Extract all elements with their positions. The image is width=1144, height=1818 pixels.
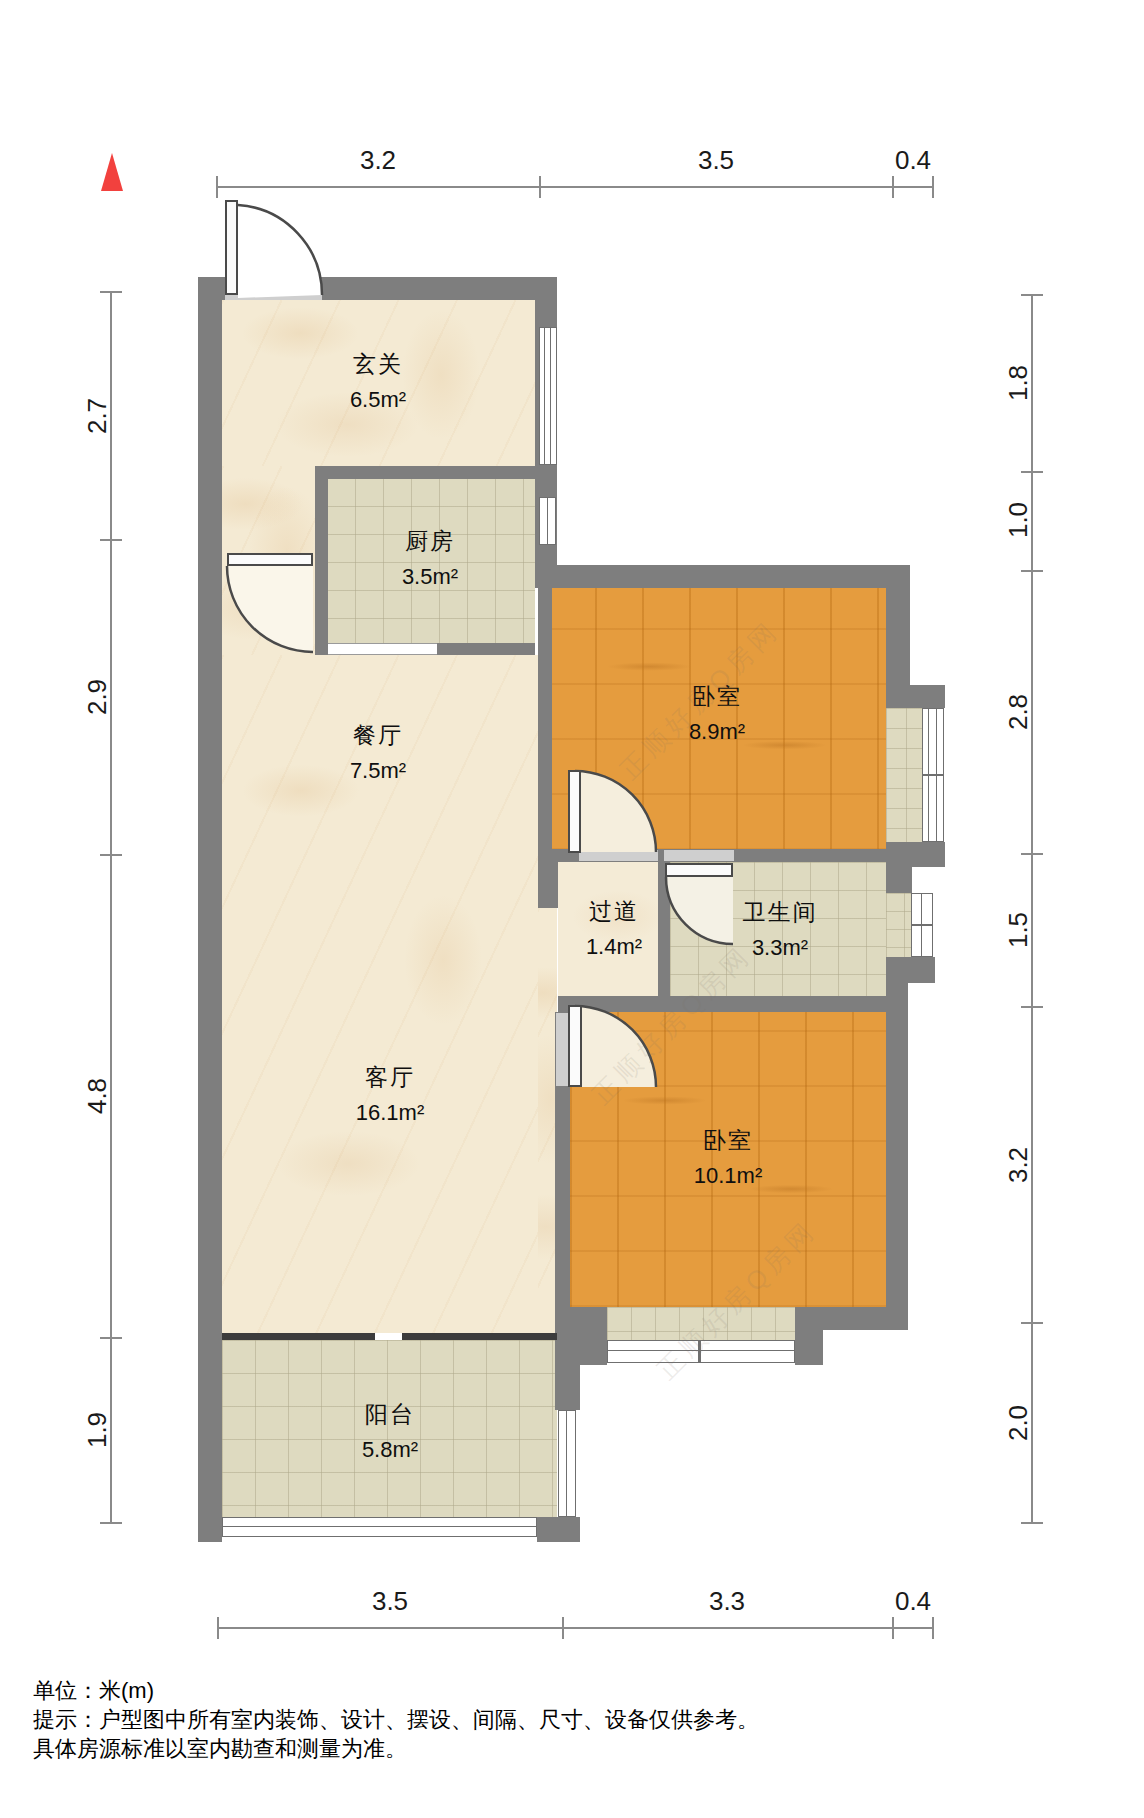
bathroom-door-leaf [665,863,733,877]
disclaimer-line1: 提示：户型图中所有室内装饰、设计、摆设、间隔、尺寸、设备仅供参考。 [33,1705,759,1734]
dim-left-2: 2.9 [82,679,113,715]
wall-bedroom1-left [538,588,552,850]
unit-note: 单位：米(m) [33,1676,759,1705]
footer-notes: 单位：米(m) 提示：户型图中所有室内装饰、设计、摆设、间隔、尺寸、设备仅供参考… [33,1676,759,1763]
wall-rightwing-top [535,565,910,588]
dim-line-top [217,186,933,188]
dim-top-1: 3.2 [360,145,396,176]
entry-window [539,327,557,465]
wall-hall-bath-divider [658,862,670,998]
dim-bottom-1: 3.5 [372,1586,408,1617]
room-label-hallway: 过道1.4m² [586,896,642,960]
wall-bay3-left-stub [578,1307,607,1365]
wall-bedroom1-right [886,587,910,708]
entry-door-leaf [225,200,238,295]
room-label-entry: 玄关6.5m² [350,349,406,413]
dim-right-3: 2.8 [1003,694,1034,730]
wall-bathbay-bottom-stub [886,957,935,983]
dim-line-right [1031,295,1033,1523]
dim-right-5: 3.2 [1003,1147,1034,1183]
balcony-divider-left [222,1333,375,1340]
wall-bay3-right [795,1307,908,1330]
dim-bottom-2: 3.3 [709,1586,745,1617]
bedroom1-door-opening [579,850,658,861]
wall-hall-stub [538,849,558,908]
wall-bay3-right-stub [795,1330,823,1365]
wall-bay1-top-stub [908,685,945,708]
wall-balcony-bottom-right [537,1517,580,1542]
balcony-railing-window [222,1517,537,1537]
floor-plan: 玄关6.5m² 厨房3.5m² 餐厅7.5m² 卧室8.9m² 过道1.4m² … [0,0,1144,1818]
wall-bedroom2-right [886,1012,908,1307]
dim-right-4: 1.5 [1003,912,1034,948]
dim-top-2: 3.5 [698,145,734,176]
room-label-dining: 餐厅7.5m² [350,720,406,784]
wall-bathbay-top-stub [886,867,912,893]
dim-left-3: 4.8 [82,1078,113,1114]
dim-left-4: 1.9 [82,1412,113,1448]
dim-top-3: 0.4 [895,145,931,176]
balcony-divider-right [402,1333,557,1340]
wall-kitchen-top [315,466,535,479]
bedroom1-bay-ledge [886,708,924,842]
balcony-right-window [558,1410,576,1517]
room-label-bedroom2: 卧室10.1m² [694,1125,762,1189]
dim-right-1: 1.8 [1003,365,1034,401]
dim-right-6: 2.0 [1003,1405,1034,1441]
room-label-living: 客厅16.1m² [356,1062,424,1126]
room-label-balcony: 阳台5.8m² [362,1399,418,1463]
wall-bay1-bottom-stub [886,842,945,867]
north-arrow-icon [101,153,123,191]
dim-left-1: 2.7 [82,398,113,434]
wall-kitchen-left [315,479,328,655]
bathroom-bay-ledge [886,893,913,957]
dim-right-2: 1.0 [1003,502,1034,538]
wall-balcony-right-upper [555,1307,580,1410]
room-label-kitchen: 厨房3.5m² [402,526,458,590]
disclaimer-line2: 具体房源标准以室内勘查和测量为准。 [33,1734,759,1763]
entry-door-opening [225,279,322,300]
wall-bedroom2-top [558,996,908,1012]
room-label-bathroom: 卫生间3.3m² [743,897,818,961]
bedroom1-door-leaf [568,770,581,853]
bathroom-door-opening [664,850,734,861]
wall-left [198,277,222,1542]
dining-door-leaf [227,553,313,566]
bedroom2-door-leaf [568,1005,582,1087]
dim-line-bottom [218,1627,933,1629]
dim-bottom-3: 0.4 [895,1586,931,1617]
kitchen-doorway-opening [328,643,437,655]
